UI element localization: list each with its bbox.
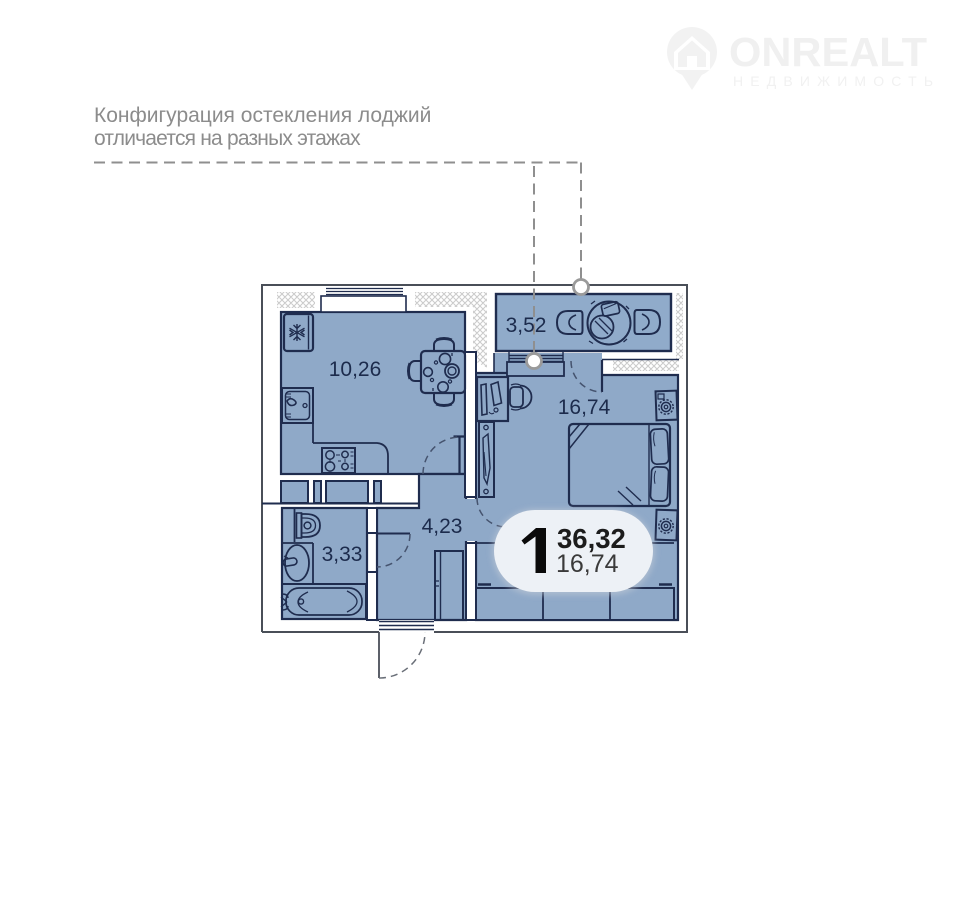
svg-text:ONREALT: ONREALT (729, 29, 927, 75)
svg-text:16,74: 16,74 (556, 550, 619, 578)
svg-text:отличается на разных этажах: отличается на разных этажах (94, 127, 361, 150)
svg-text:4,23: 4,23 (422, 515, 463, 538)
svg-text:3,52: 3,52 (506, 314, 547, 337)
svg-text:3,33: 3,33 (322, 543, 363, 566)
svg-text:Конфигурация остекления лоджий: Конфигурация остекления лоджий (94, 104, 431, 127)
svg-text:16,74: 16,74 (558, 396, 611, 419)
svg-text:10,26: 10,26 (329, 358, 382, 381)
